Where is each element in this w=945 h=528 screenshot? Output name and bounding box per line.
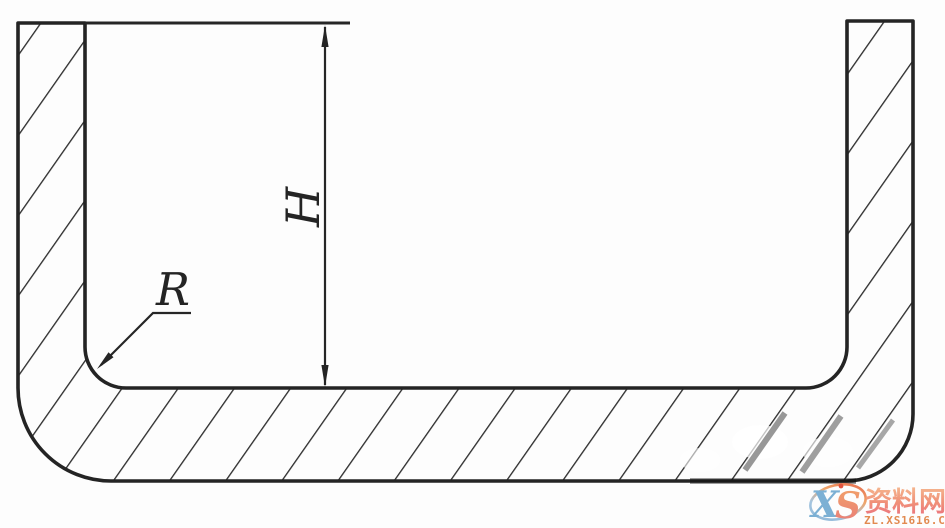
arrow-down-icon	[321, 365, 328, 387]
watermark-letter-s: S	[835, 485, 861, 527]
height-dimension-label: H	[276, 186, 330, 228]
drawing-canvas: H R X S 资料网 ZL.XS1616.COM	[0, 0, 945, 528]
cross-section-body	[18, 21, 913, 481]
arrow-up-icon	[321, 25, 328, 47]
technical-drawing: H R X S 资料网 ZL.XS1616.COM	[0, 0, 945, 528]
height-dimension: H	[276, 25, 330, 387]
leader-arrow-icon	[97, 352, 114, 369]
site-watermark: X S 资料网 ZL.XS1616.COM	[807, 480, 945, 527]
radius-leader-line	[101, 313, 191, 365]
watermark-site-url: ZL.XS1616.COM	[864, 514, 945, 527]
radius-callout: R	[97, 263, 191, 369]
radius-label: R	[155, 263, 190, 316]
